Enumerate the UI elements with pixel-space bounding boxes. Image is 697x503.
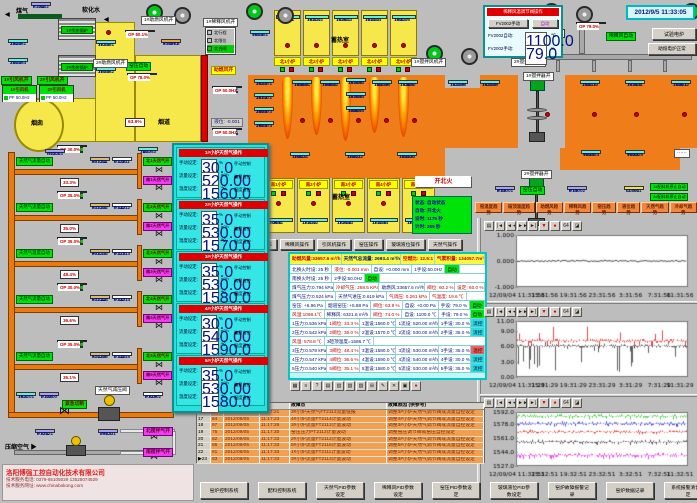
booster-status-button[interactable]: 助熔电炉正常	[648, 43, 696, 55]
chart-toolbar-icon[interactable]: ▼	[539, 307, 549, 317]
alarm-row[interactable]: ▶23 83 2012/09/05 11:17:33 3#小炉流量FT2113计…	[197, 457, 484, 464]
operation-button[interactable]: 稀释风操作	[280, 239, 314, 250]
alarm-row-number: ▶23	[197, 457, 211, 463]
air-valve-icon[interactable]	[71, 436, 81, 446]
summary-cell: 北换火时设: 25 秒	[290, 265, 332, 273]
alarm-point: 1#小炉流量FT2111计量波动	[290, 450, 387, 456]
faceplate-row: OP 50.0Hz	[213, 87, 236, 94]
hmi-label: 2#搅拌器开	[521, 170, 552, 179]
hmi-label: 北搅拌气开	[143, 427, 173, 436]
temp-set-label: 温度设定:	[179, 290, 198, 301]
south-gas-open-label: 南4天然气开	[143, 314, 172, 323]
gas-pid-faceplate[interactable]: FV2215 SPT 1580.0 SPF 530.00 OP 35.0%	[57, 340, 87, 342]
unit-label: m³/h	[221, 277, 229, 288]
alarm-row[interactable]: 19 75 2012/09/05 11:17:30 窑压压力PT2112计量波动…	[197, 430, 484, 437]
fv2002-auto-button[interactable]: 自动	[532, 19, 558, 28]
chimney-label: 烟囱	[29, 120, 45, 129]
summary-toolbar: ▦≡?▤▥▧▨⊞✎✕▣♦	[290, 381, 421, 391]
tag-value: 603.19	[92, 251, 106, 257]
damper-status-panel: 北行程 北限位 北合闸	[205, 27, 236, 55]
gas-riser-pipe	[137, 199, 142, 235]
sensor-dot-icon	[401, 43, 406, 48]
summary-cell: 南换火时设: 25 秒	[290, 274, 332, 282]
manual-set-label: 手动设定:	[179, 316, 198, 327]
alarm-time: 11:17:33	[260, 437, 290, 443]
drop-pipe	[628, 60, 632, 72]
port-label: 北4小炉	[361, 57, 388, 66]
status-green-icon	[280, 67, 285, 72]
summary-row: 北换火时设: 25 秒液位: -0.001 mm自设: +0.000 mm1手设…	[290, 265, 485, 274]
alarm-date: 2012/09/05	[224, 443, 260, 449]
tag-value: 0.265	[41, 394, 53, 400]
trend-button[interactable]: 助燃风趋势	[536, 202, 563, 213]
toolbar-icon[interactable]: ▦	[290, 381, 300, 391]
hmi-label: 窑压自动	[520, 186, 545, 195]
summary-cell: 1手设: 30.0 %	[439, 319, 471, 327]
tag-value: -220.1	[47, 151, 60, 157]
tag-value: 0.136	[114, 159, 126, 165]
chart-toolbar-icon[interactable]: ◪	[572, 398, 582, 408]
chart-toolbar-icon[interactable]: ◄◄	[506, 221, 516, 231]
hmi-label: 1#引风机开	[1, 76, 32, 85]
trend-button[interactable]: 天然气趋势	[641, 202, 668, 213]
status-line: 计时: 269 秒	[415, 223, 469, 231]
waste-heat-boiler: 1#余热锅炉	[58, 18, 96, 40]
chart-toolbar-icon[interactable]: |◄	[495, 307, 505, 317]
tag-value: 1523.9	[450, 82, 464, 88]
radio-temp-direct[interactable]: ○ 温度直控	[234, 187, 251, 193]
flow-tag: FT2212532.89	[90, 203, 110, 207]
sensor-dot-icon	[634, 112, 639, 117]
radio-icon: ○	[234, 187, 237, 192]
temp-set-input[interactable]: 1580.0	[201, 393, 219, 413]
alarm-reason: 调整4#小炉天然气调节阀或流量自控设定	[387, 417, 484, 423]
alarm-row[interactable]: 20 82 2012/09/05 11:17:33 2#小炉流量FT2112计量…	[197, 437, 484, 444]
sensor-dot-icon	[381, 201, 386, 206]
toolbar-icon[interactable]: ✕	[389, 381, 399, 391]
alarm-row-number: 20	[197, 437, 211, 443]
radio-icon: ○	[234, 395, 237, 400]
summary-cell: 5压力:0.540 kPa	[290, 364, 327, 372]
flow-set-label: 流量设定:	[179, 225, 198, 236]
instrument-tag: PT2121 0.524	[35, 429, 55, 433]
port-label: 北2小炉	[303, 57, 330, 66]
gas-valve-icon[interactable]: ⋈	[155, 165, 163, 174]
chart-toolbar-icon[interactable]: ▤	[484, 398, 494, 408]
port-label: 北3小炉	[332, 57, 359, 66]
status-red-icon	[281, 191, 286, 196]
alarm-reason: 调整2#小炉天然气调节阀或流量自控设定	[387, 437, 484, 443]
summary-cell: 2温设:1570.0 ℃	[360, 328, 397, 336]
operation-button[interactable]: 引风机操作	[317, 239, 351, 250]
alarm-code: 83	[211, 457, 224, 463]
summary-cell: 1流设: 520.00 m³/h	[396, 319, 438, 327]
op-row: OP 35.0%	[58, 341, 80, 348]
gas-line-row: 天然气流量自动 FV2212 SPT 1570.0 SPF 530.00 OP …	[0, 191, 185, 237]
damper-status-row: 北行程	[207, 29, 234, 37]
trend-button[interactable]: 窑温度趋势	[475, 202, 502, 213]
hmi-label: 1#助燃风机开	[141, 16, 176, 25]
temperature-trend-chart[interactable]	[488, 409, 694, 479]
nav-button[interactable]: 天然气PID参数设定	[316, 482, 364, 499]
op-row: OP 30.0%	[58, 284, 80, 291]
summary-cell: 气累积量: 134057.7m³	[435, 254, 485, 264]
alarm-code: 97	[211, 423, 224, 429]
chart-toolbar-icon[interactable]: ▼	[539, 221, 549, 231]
radio-temp-direct[interactable]: ○ 温度直控	[234, 343, 251, 349]
summary-cell: 流控	[471, 328, 485, 336]
gas-valve-icon[interactable]: ⋈	[155, 303, 163, 312]
alarm-row[interactable]: 22 81 2012/09/05 11:17:33 1#小炉流量FT2111计量…	[197, 450, 484, 457]
pressure-trend-chart[interactable]	[488, 318, 694, 390]
nav-button[interactable]: 窑炉故障报警记录	[548, 482, 596, 499]
summary-cell: 1压力:0.536 kPa	[290, 319, 327, 327]
tag-value: 1538.5	[400, 82, 414, 88]
chart-toolbar-icon[interactable]: ▤	[484, 221, 494, 231]
alarm-date: 2012/09/05	[224, 417, 260, 423]
flow-tag: FT2213603.19	[90, 249, 110, 253]
gas-branch-pipe	[14, 261, 140, 267]
toolbar-icon[interactable]: ▥	[334, 381, 344, 391]
alarm-row-number: 22	[197, 450, 211, 456]
toolbar-icon[interactable]: ▤	[323, 381, 333, 391]
gas-valve-icon[interactable]: ⋈	[155, 360, 163, 369]
hmi-label: 液位: -0.001	[211, 118, 243, 127]
vendor-info-box: 洛阳博强工控自动化技术有限公司 技术服务电话: 0379-65105029 13…	[2, 464, 194, 501]
alarm-reason: 调整3#小炉天然气调节阀或流量自控设定	[387, 423, 484, 429]
hmi-label: 1#稀释风机开	[203, 18, 238, 27]
tag-value: 965.8	[627, 152, 639, 158]
alarm-row[interactable]: 17 84 2012/09/05 11:17:23 4#小炉流量FT2114计量…	[197, 417, 484, 424]
tag-value: 1081.1	[582, 82, 596, 88]
radio-temp-direct[interactable]: ◉ 温度直控	[234, 291, 251, 297]
pid-faceplate[interactable]: PV2001 PF 80.2% OP 80.1%	[125, 30, 155, 32]
flow-tag: FT2214532.44	[90, 295, 110, 299]
gas-control-valve-icon[interactable]	[104, 395, 115, 406]
radio-flow-auto[interactable]: ◉ 流量自控	[234, 174, 251, 180]
toolbar-icon[interactable]: ▨	[356, 381, 366, 391]
tag-value: 283.0	[256, 81, 268, 87]
run-indicator-icon	[41, 96, 45, 100]
unit-label: ℃	[221, 394, 226, 405]
gas-auto-mode-label: 天然气流量自动	[16, 157, 53, 166]
stirrer-base	[529, 132, 545, 142]
fan-controller: 2#引风机 PF 50.0Hz	[39, 85, 74, 102]
radio-manual[interactable]: ○ 手动控制	[234, 369, 251, 375]
south-gas-open-label: 南3天然气开	[143, 268, 172, 277]
tag-value: 0.147	[114, 297, 126, 303]
chart-toolbar-icon[interactable]: ►►	[517, 398, 527, 408]
flow-set-label: 流量设定:	[179, 277, 198, 288]
north-gas-open-label: 北3天然气开	[143, 249, 172, 258]
hmi-label: 南搅拌气开	[143, 448, 173, 457]
hmi-label: 1#搅拌器开	[523, 72, 554, 81]
nav-button[interactable]: 窑炉控制系统	[200, 482, 248, 499]
section-title: 1#小炉天然气操作	[179, 149, 268, 157]
gas-branch-pipe	[14, 364, 140, 370]
tag-value: 1025.1	[336, 17, 350, 23]
summary-row: 煤气压力:0.794 kPa冷却气压: 268.5 KPa助燃风:33657.6…	[290, 283, 485, 292]
stirrer-shaft	[536, 91, 539, 138]
summary-cell: 冷却气压: 268.5 KPa	[334, 283, 380, 291]
chart-toolbar-icon[interactable]: ●	[550, 398, 560, 408]
hmi-label: 63.9%	[125, 118, 145, 127]
radio-temp-direct[interactable]: ○ 温度直控	[234, 395, 251, 401]
radio-icon: ◉	[234, 382, 238, 388]
instrument-tag: TE2051 565.8	[250, 30, 270, 34]
level-trend-chart[interactable]	[488, 232, 694, 300]
radio-flow-auto[interactable]: ○ 流量自控	[234, 278, 251, 284]
summary-row: 3压力:0.578 kPa3阀位: 48.4 %3温设:1580.0 ℃3流设:…	[290, 346, 485, 355]
alarm-time: 11:17:33	[260, 443, 290, 449]
temperature-tag: TE30021011.7	[305, 15, 329, 19]
tag-value: 524.58	[92, 354, 106, 360]
chart-toolbar-icon[interactable]: ●	[550, 307, 560, 317]
tag-value: 1051.7	[394, 17, 408, 23]
pid-faceplate[interactable]: 配料机M3001 PF 33.0Hz SP 0.00 OP 50.0Hz	[212, 86, 242, 88]
radio-manual[interactable]: ○ 手动控制	[234, 161, 251, 167]
nav-button[interactable]: 配料控制系统	[258, 482, 306, 499]
status-line: 自动: 开北火	[415, 207, 469, 215]
chart-toolbar-icon[interactable]: 64	[561, 307, 571, 317]
fan-icon	[277, 7, 294, 24]
tag-value: 1586.7	[348, 108, 362, 114]
nav-button[interactable]: 玻璃液位PID参数设定	[490, 482, 538, 499]
fan-icon	[461, 48, 478, 65]
fan-controller: 1#引风机 PF 50.0Hz	[2, 85, 37, 102]
chart-toolbar-icon[interactable]: ▤	[484, 307, 494, 317]
summary-cell: 5流设: 530.00 m³/h	[396, 364, 438, 372]
trend-button[interactable]: 液位趋势	[617, 202, 640, 213]
unit-label: m³/h	[221, 381, 229, 392]
instrument-tag: TE2073 289.6	[254, 107, 274, 111]
south-port-block: 南3小炉 TE30431224.8	[332, 178, 365, 233]
chart-toolbar-icon[interactable]: ◪	[572, 221, 582, 231]
chart-toolbar-icon[interactable]: ►►	[517, 221, 527, 231]
tag-value: 0.140	[114, 354, 126, 360]
toolbar-icon[interactable]: ?	[312, 381, 322, 391]
gas-line-row: 天然气流量自动 FV2211 SPT 1560.0 SPF 520.00 OP …	[0, 145, 185, 191]
tag-value: 1523.6	[482, 82, 496, 88]
alarm-code: 85	[211, 443, 224, 449]
hmi-label: ◀	[102, 16, 111, 25]
port-gas-control-popup: 1#小炉天然气操作 手动设定: 30.0 % 流量设定: 520.00 m³/h…	[172, 143, 269, 413]
summary-cell: 煤气压力:0.794 kPa	[290, 283, 334, 291]
unit-label: ℃	[221, 342, 226, 353]
toolbar-icon[interactable]: ♦	[411, 381, 421, 391]
nav-button[interactable]: 稀释风PID参数设定	[374, 482, 422, 499]
toolbar-icon[interactable]: ▧	[345, 381, 355, 391]
gas-pid-faceplate[interactable]: FV2212 SPT 1570.0 SPF 530.00 OP 35.0%	[57, 191, 87, 193]
sensor-dot-icon	[682, 112, 687, 117]
chart-toolbar-icon[interactable]: ►|	[528, 307, 538, 317]
instrument-tag: TE3061 1558.0	[292, 80, 312, 84]
pid-faceplate[interactable]: 配料机M3002 PF 33.0Hz SP 0.00 OP 50.0Hz	[212, 128, 242, 130]
alarm-date: 2012/09/05	[224, 423, 260, 429]
toolbar-icon[interactable]: ✎	[378, 381, 388, 391]
radio-manual[interactable]: ○ 手动控制	[234, 317, 251, 323]
trend-button[interactable]: 窑压趋势	[592, 202, 615, 213]
faceplate-row	[126, 31, 128, 38]
instrument-tag: TE3064 1578.8	[346, 92, 366, 96]
status-green-icon	[376, 191, 381, 196]
chart-toolbar-icon[interactable]: ►►	[517, 307, 527, 317]
operation-button[interactable]: 窑压操作	[354, 239, 383, 250]
toolbar-icon[interactable]: ⊞	[367, 381, 377, 391]
summary-cell: 风温: 578.8 ℃	[290, 337, 325, 345]
radio-manual[interactable]: ○ 手动控制	[234, 265, 251, 271]
hmi-label: 稀释风自动	[606, 32, 636, 41]
radio-icon: ◉	[234, 174, 238, 180]
sensor-dot-icon	[276, 201, 281, 206]
operation-button[interactable]: 玻璃液位操作	[386, 239, 425, 250]
hmi-label: 天然气减压阀	[95, 386, 130, 395]
toolbar-icon[interactable]: ≡	[301, 381, 311, 391]
faceplate-row: OP 80.1%	[126, 31, 148, 38]
alarm-row-number: 17	[197, 417, 211, 423]
chart-toolbar-icon[interactable]: 64	[561, 221, 571, 231]
alarm-row[interactable]: 18 97 2012/09/05 11:17:26 3#小炉流量FT2113计量…	[197, 423, 484, 430]
chart-toolbar-icon[interactable]: |◄	[495, 398, 505, 408]
nav-button[interactable]: 窑炉数据记录	[606, 482, 654, 499]
chart-toolbar-icon[interactable]: ◄◄	[506, 398, 516, 408]
instrument-tag: TE2071 283.0	[254, 79, 274, 83]
tag-value: 289.6	[256, 109, 268, 115]
start-north-fire-button[interactable]: 开北火	[415, 176, 472, 188]
radio-manual[interactable]: ○ 手动控制	[234, 213, 251, 219]
tag-value: 1209.6	[267, 220, 281, 226]
instrument-tag: TE3008 1523.9	[448, 80, 468, 84]
chart-toolbar-icon[interactable]: ►|	[528, 398, 538, 408]
chart-toolbar-icon[interactable]: ●	[550, 221, 560, 231]
radio-flow-auto[interactable]: ◉ 流量自控	[234, 330, 251, 336]
chart-toolbar-icon[interactable]: ◪	[572, 307, 582, 317]
north-port: 北4小炉	[361, 57, 388, 74]
alarm-reason-header: 故障原因 (供参考)	[387, 403, 484, 409]
alarm-row-number: 18	[197, 423, 211, 429]
manual-set-label: 手动设定:	[179, 212, 198, 223]
test-furnace-button[interactable]: 试验电炉	[652, 28, 696, 40]
port-label: 南3小炉	[334, 180, 363, 189]
summary-row: 风温:1098.1℃稀释风: 6321.6 m³/h阀位: 74.0 %自设: …	[290, 310, 485, 319]
valve-position-readout: 33.3%	[60, 178, 79, 187]
radio-flow-auto[interactable]: ◉ 流量自控	[234, 226, 251, 232]
pid-faceplate[interactable]: PV2001 PF 5.88 SP 6.00 OP 78.0%	[127, 73, 157, 75]
fv2002-manual-button[interactable]: FV2002手动	[488, 19, 528, 28]
summary-row: 风温: 578.8 ℃3碹顶温度=1586.7 ℃	[290, 337, 485, 346]
section-title: 4#小炉天然气操作	[179, 305, 268, 313]
status-green-icon	[396, 67, 401, 72]
summary-cell: 3压力:0.578 kPa	[290, 346, 327, 354]
manual-output-input[interactable]: 79.0	[525, 45, 547, 65]
radio-flow-auto[interactable]: ◉ 流量自控	[234, 382, 251, 388]
instrument-tag: TE2064 239.0	[8, 58, 28, 62]
alarm-reason: 调整5#小炉天然气调节阀或流量自控设定	[387, 443, 484, 449]
temp-set-label: 温度设定:	[179, 394, 198, 405]
summary-cell: 助燃风:33657.6 m³/h	[379, 283, 424, 291]
gas-valve-icon[interactable]: ⋈	[155, 257, 163, 266]
summary-cell: 流控	[471, 355, 485, 363]
summary-cell: 温控	[471, 346, 485, 354]
chart-toolbar-icon[interactable]: ▼	[539, 398, 549, 408]
process-summary-panel: 助燃风量:33657.6 m³/h天然气总流量: 2693.4 m³/h空燃比:…	[288, 252, 487, 380]
summary-cell: 手设: 79.0 %	[439, 310, 470, 318]
nav-button[interactable]: 窑压PID参数设定	[432, 482, 480, 499]
pid-faceplate[interactable]: PV2002 PF 1098.1 SP 1100.0 OP 79.0%	[576, 22, 606, 24]
gas-pid-faceplate[interactable]: FV2213 SPT 1580.0 SPF 530.00 OP 35.0%	[57, 237, 87, 239]
boiler-label: 2#余热锅炉	[61, 63, 93, 71]
radio-icon: ○	[234, 369, 237, 374]
pressure-tag: PT22110.136	[112, 157, 132, 161]
nav-button[interactable]: 系统报警清音设定	[664, 482, 697, 499]
summary-cell: 4流设: 540.00 m³/h	[396, 355, 438, 363]
chart-toolbar-icon[interactable]: ◄◄	[506, 307, 516, 317]
hmi-label: 2#配料机停止自动	[650, 193, 688, 201]
tag-value: 1578.8	[348, 94, 362, 100]
gas-flowmeter	[98, 407, 120, 421]
status-green-icon	[367, 67, 372, 72]
gas-pid-faceplate[interactable]: FV2211 SPT 1560.0 SPF 520.00 OP 30.0%	[57, 145, 87, 147]
alarm-point: 3#小炉流量FT2113计量波动	[290, 457, 387, 463]
radio-icon: ○	[234, 213, 237, 218]
hmi-label: ⋯⋯	[674, 149, 690, 158]
pressure-tag: PT22150.140	[112, 352, 132, 356]
hmi-label: 2#助燃风机开	[93, 59, 128, 68]
summary-cell: 阀位: 63.9 %	[371, 301, 403, 309]
south-gas-open-label: 南1天然气开	[143, 176, 172, 185]
alarm-date: 2012/09/05	[224, 437, 260, 443]
alarm-row[interactable]: 21 85 2012/09/05 11:17:33 5#小炉流量FT2115计量…	[197, 443, 484, 450]
drop-pipe	[592, 60, 596, 72]
unit-label: %	[219, 368, 223, 379]
status-green-icon	[271, 191, 276, 196]
trend-button-row: 窑温度趋势碹顶温度趋势助燃风趋势稀释风趋势窑压趋势液位趋势天然气趋势冷却气趋势	[475, 202, 697, 213]
radio-icon: ○	[234, 317, 237, 322]
chart-toolbar-icon[interactable]: |◄	[495, 221, 505, 231]
run-indicator-icon	[4, 96, 8, 100]
instrument-tag: TE3011 1079.6	[625, 80, 645, 84]
operation-button[interactable]: 天然气操作	[428, 239, 462, 250]
flow-tag: FT2211557.84	[90, 157, 110, 161]
bottom-navigation-row: 窑炉控制系统配料控制系统天然气PID参数设定稀释风PID参数设定窑压PID参数设…	[200, 482, 697, 499]
alarm-point: 3#小炉流量FT2113计量波动	[290, 423, 387, 429]
trend-button[interactable]: 冷却气趋势	[670, 202, 697, 213]
tag-value: 1570.9	[348, 80, 362, 86]
summary-cell: 3阀位: 48.4 %	[327, 346, 359, 354]
temperature-tag: TE30431224.8	[335, 218, 363, 222]
hmi-label: 压缩空气 ▶	[3, 444, 39, 453]
chart-toolbar-icon[interactable]: 64	[561, 398, 571, 408]
tag-value: 0.524	[37, 431, 49, 437]
tag-value: 0.794	[33, 4, 45, 10]
trend-button[interactable]: 稀释风趋势	[564, 202, 591, 213]
op-row: OP 35.0%	[58, 192, 80, 199]
trend-button[interactable]: 碹顶温度趋势	[503, 202, 534, 213]
unit-label: %	[219, 264, 223, 275]
instrument-tag: PT3002 6.06	[567, 186, 587, 190]
summary-cell: 自动	[365, 274, 379, 282]
toolbar-icon[interactable]: ▣	[400, 381, 410, 391]
status-red-icon	[386, 191, 391, 196]
port-label: 南4小炉	[369, 180, 398, 189]
radio-icon: ○	[234, 343, 237, 348]
chart-toolbar-icon[interactable]: ►|	[528, 221, 538, 231]
status-red-icon	[376, 67, 381, 72]
gas-pid-faceplate[interactable]: FV2214 SPT 1590.0 SPF 540.00 OP 30.0%	[57, 283, 87, 285]
gas-valve-icon[interactable]: ⋈	[155, 211, 163, 220]
summary-cell: 烟道窑压: +5.88 Pa	[326, 301, 371, 309]
radio-temp-direct[interactable]: ○ 温度直控	[234, 239, 251, 245]
